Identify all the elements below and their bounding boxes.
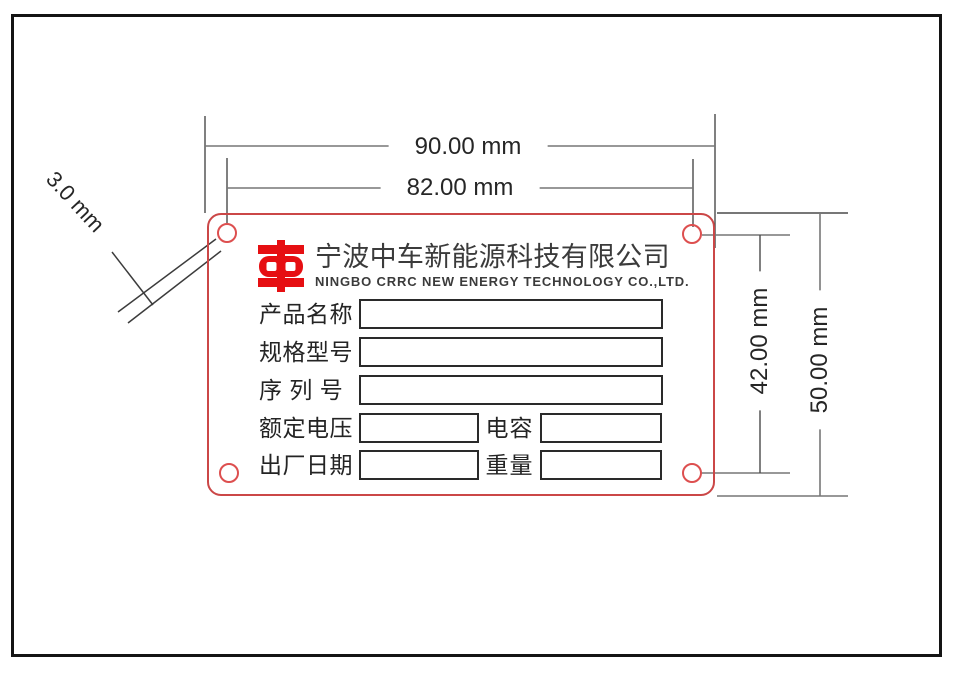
field-label-rated-voltage: 额定电压 [259, 413, 359, 443]
field-label-serial-number: 序 列 号 [259, 375, 359, 405]
field-box-serial-number [359, 375, 663, 405]
field-label-weight: 重量 [479, 450, 540, 480]
field-label-spec-model: 规格型号 [259, 337, 359, 367]
brand-block: 宁波中车新能源科技有限公司 NINGBO CRRC NEW ENERGY TEC… [256, 240, 689, 292]
field-row-voltage-capacitance: 额定电压 电容 [259, 413, 662, 443]
crrc-logo-icon [256, 240, 306, 292]
field-row-spec-model: 规格型号 [259, 337, 663, 367]
field-label-capacitance: 电容 [479, 413, 540, 443]
nameplate: 宁波中车新能源科技有限公司 NINGBO CRRC NEW ENERGY TEC… [207, 213, 715, 496]
field-box-rated-voltage [359, 413, 479, 443]
dim-label-width-holes: 82.00 mm [381, 175, 540, 201]
dim-label-width-outer: 90.00 mm [389, 134, 548, 160]
field-row-serial-number: 序 列 号 [259, 375, 663, 405]
leader-line-hole-diameter-cross [112, 252, 153, 305]
field-box-capacitance [540, 413, 662, 443]
field-label-product-name: 产品名称 [259, 299, 359, 329]
field-box-product-name [359, 299, 663, 329]
field-box-spec-model [359, 337, 663, 367]
leader-line-hole-diameter-1 [118, 239, 216, 312]
company-name-cn: 宁波中车新能源科技有限公司 [315, 242, 689, 272]
dim-label-height-outer: 50.00 mm [807, 291, 833, 430]
drawing-canvas: 90.00 mm 82.00 mm 42.00 mm 50.00 mm 3.0 … [0, 0, 960, 678]
company-name-en: NINGBO CRRC NEW ENERGY TECHNOLOGY CO.,LT… [315, 275, 689, 289]
field-box-manufacture-date [359, 450, 479, 480]
field-row-product-name: 产品名称 [259, 299, 663, 329]
field-row-date-weight: 出厂日期 重量 [259, 450, 662, 480]
field-label-manufacture-date: 出厂日期 [259, 450, 359, 480]
field-box-weight [540, 450, 662, 480]
dim-label-height-holes: 42.00 mm [747, 272, 773, 411]
